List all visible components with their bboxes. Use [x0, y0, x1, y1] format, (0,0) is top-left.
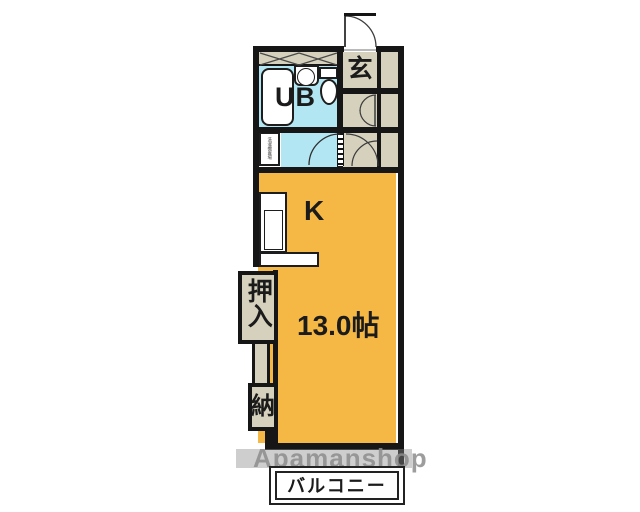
storage-label: 納 [251, 394, 275, 419]
closet-label: 押入 [245, 278, 271, 328]
closet-bottom-area [343, 133, 377, 167]
wall-top-left [253, 46, 344, 52]
closet-mid-area [343, 94, 377, 127]
floorplan-canvas: 洗濯機置場 押入 納 [0, 0, 640, 512]
unit-bath-label: UB [275, 83, 316, 111]
balcony-inner-border: バルコニー [275, 471, 399, 500]
pipe-column-bottom [381, 133, 398, 167]
washing-machine-box: 洗濯機置場 [259, 132, 280, 166]
wall-bath-bottom [253, 127, 343, 133]
kitchen-counter-return [259, 252, 319, 267]
bath-hall-area [281, 133, 338, 167]
entrance-door [344, 15, 376, 48]
bath-door-panel [337, 133, 344, 166]
wall-kitchen-top [253, 167, 404, 173]
pipe-column-mid [381, 94, 398, 127]
closet-connector [252, 341, 270, 386]
room-size-label: 13.0帖 [297, 311, 380, 340]
storage-box: 納 [248, 383, 278, 431]
kitchen-label: K [304, 196, 324, 225]
balcony-label: バルコニー [277, 473, 397, 500]
entrance-label: 玄 [343, 56, 377, 82]
washing-machine-label: 洗濯機置場 [267, 137, 272, 160]
wall-column-div1 [337, 88, 404, 94]
wall-left-upper [253, 46, 259, 267]
toilet-tank [319, 67, 338, 79]
pipe-column-top [381, 52, 398, 88]
kitchen-sink [264, 210, 283, 250]
oshiire-box: 押入 [238, 271, 278, 344]
hatch-strip-area [259, 52, 338, 66]
wall-entrance-right [377, 52, 381, 167]
wall-column-div2 [337, 127, 404, 133]
wall-right [398, 46, 404, 467]
entrance-threshold [344, 49, 376, 51]
